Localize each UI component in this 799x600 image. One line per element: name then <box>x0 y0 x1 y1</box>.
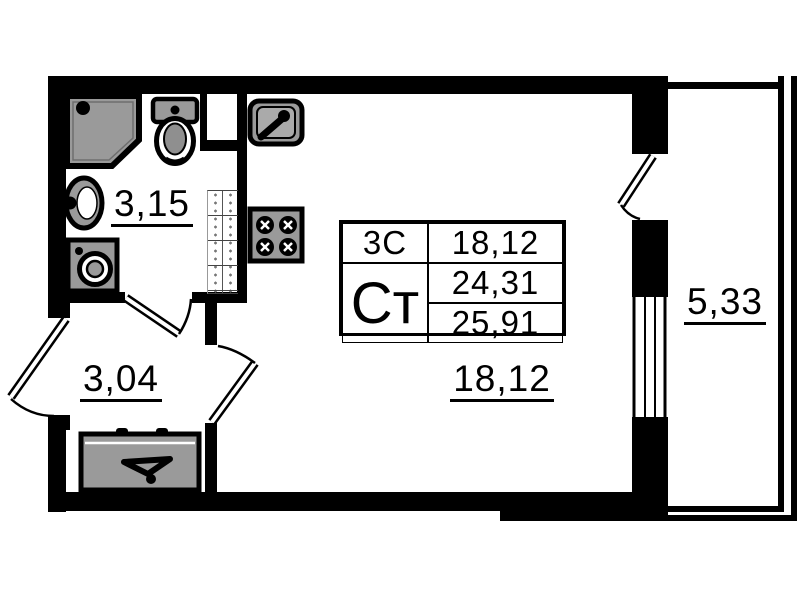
bathroom-area-value: 3,15 <box>111 185 193 227</box>
shower-icon <box>67 96 139 166</box>
unit-type-label: Ст <box>342 263 428 343</box>
bathroom-door-swing-icon <box>126 298 191 334</box>
washing-machine-icon <box>68 240 117 291</box>
washbasin-icon <box>64 178 103 228</box>
room-door-swing-icon <box>212 346 255 422</box>
unit-rooms-area: 18,12 <box>428 223 563 263</box>
living-area-label: 18,12 <box>450 360 554 402</box>
living-area-value: 18,12 <box>450 360 554 402</box>
unit-living-area: 24,31 <box>428 263 563 303</box>
balcony-door-swing-icon <box>621 156 653 219</box>
window-icon <box>634 295 665 418</box>
unit-rooms-label: 3С <box>342 223 428 263</box>
hallway-area-value: 3,04 <box>80 360 162 402</box>
balcony-area-label: 5,33 <box>678 283 772 325</box>
entrance-door-swing-icon <box>11 319 66 416</box>
stove-icon <box>250 209 302 261</box>
toilet-icon <box>153 99 197 164</box>
unit-info-table: 3С 18,12 Ст 24,31 25,91 <box>339 220 566 336</box>
wardrobe-icon <box>81 428 199 490</box>
kitchen-sink-icon <box>250 101 302 144</box>
balcony-area-value: 5,33 <box>684 283 766 325</box>
unit-total-area: 25,91 <box>428 303 563 343</box>
bathroom-area-label: 3,15 <box>108 185 196 227</box>
floor-plan: 3,15 3,04 18,12 5,33 3С 18,12 Ст 24,31 2… <box>0 0 799 600</box>
hallway-area-label: 3,04 <box>77 360 165 402</box>
